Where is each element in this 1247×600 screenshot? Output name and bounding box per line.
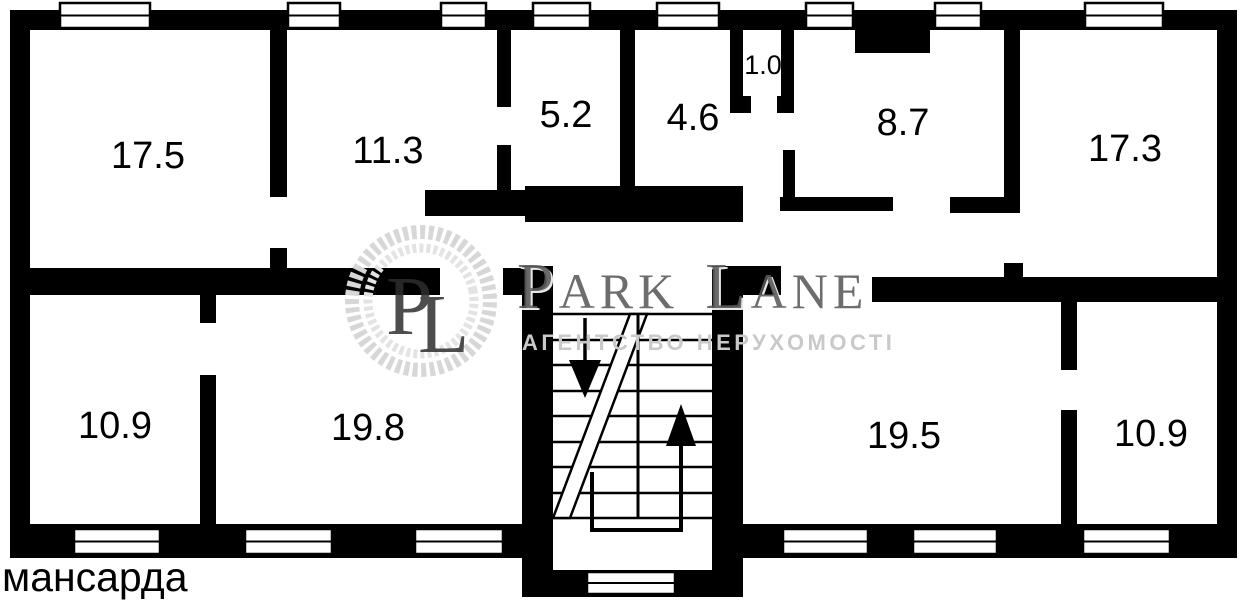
room-label-17-5: 17.5 (111, 135, 185, 177)
room-label-11-3: 11.3 (352, 130, 423, 172)
floor-plan-canvas: 17.5 11.3 5.2 4.6 1.0 8.7 17.3 10.9 19.8… (0, 0, 1247, 600)
room-label-17-3: 17.3 (1088, 128, 1162, 170)
room-label-10-9-right: 10.9 (1114, 413, 1188, 455)
brand-ark: ARK (559, 263, 680, 319)
brand-tagline: АГЕНТСТВО НЕРУХОМОСТІ (522, 330, 895, 355)
room-label-1-0: 1.0 (744, 50, 782, 80)
floor-plan: 17.5 11.3 5.2 4.6 1.0 8.7 17.3 10.9 19.8… (0, 0, 1247, 600)
room-label-4-6: 4.6 (667, 97, 720, 139)
room-label-8-7: 8.7 (877, 102, 930, 144)
room-label-19-5: 19.5 (867, 415, 941, 457)
brand-p: P (517, 250, 559, 323)
monogram-l: L (418, 278, 469, 371)
room-label-10-9-left: 10.9 (78, 405, 152, 447)
brand-ane: ANE (751, 263, 869, 319)
floor-title: мансарда (2, 554, 188, 600)
room-label-19-8: 19.8 (331, 407, 405, 449)
brand-l: L (705, 250, 750, 323)
room-label-5-2: 5.2 (540, 94, 593, 136)
